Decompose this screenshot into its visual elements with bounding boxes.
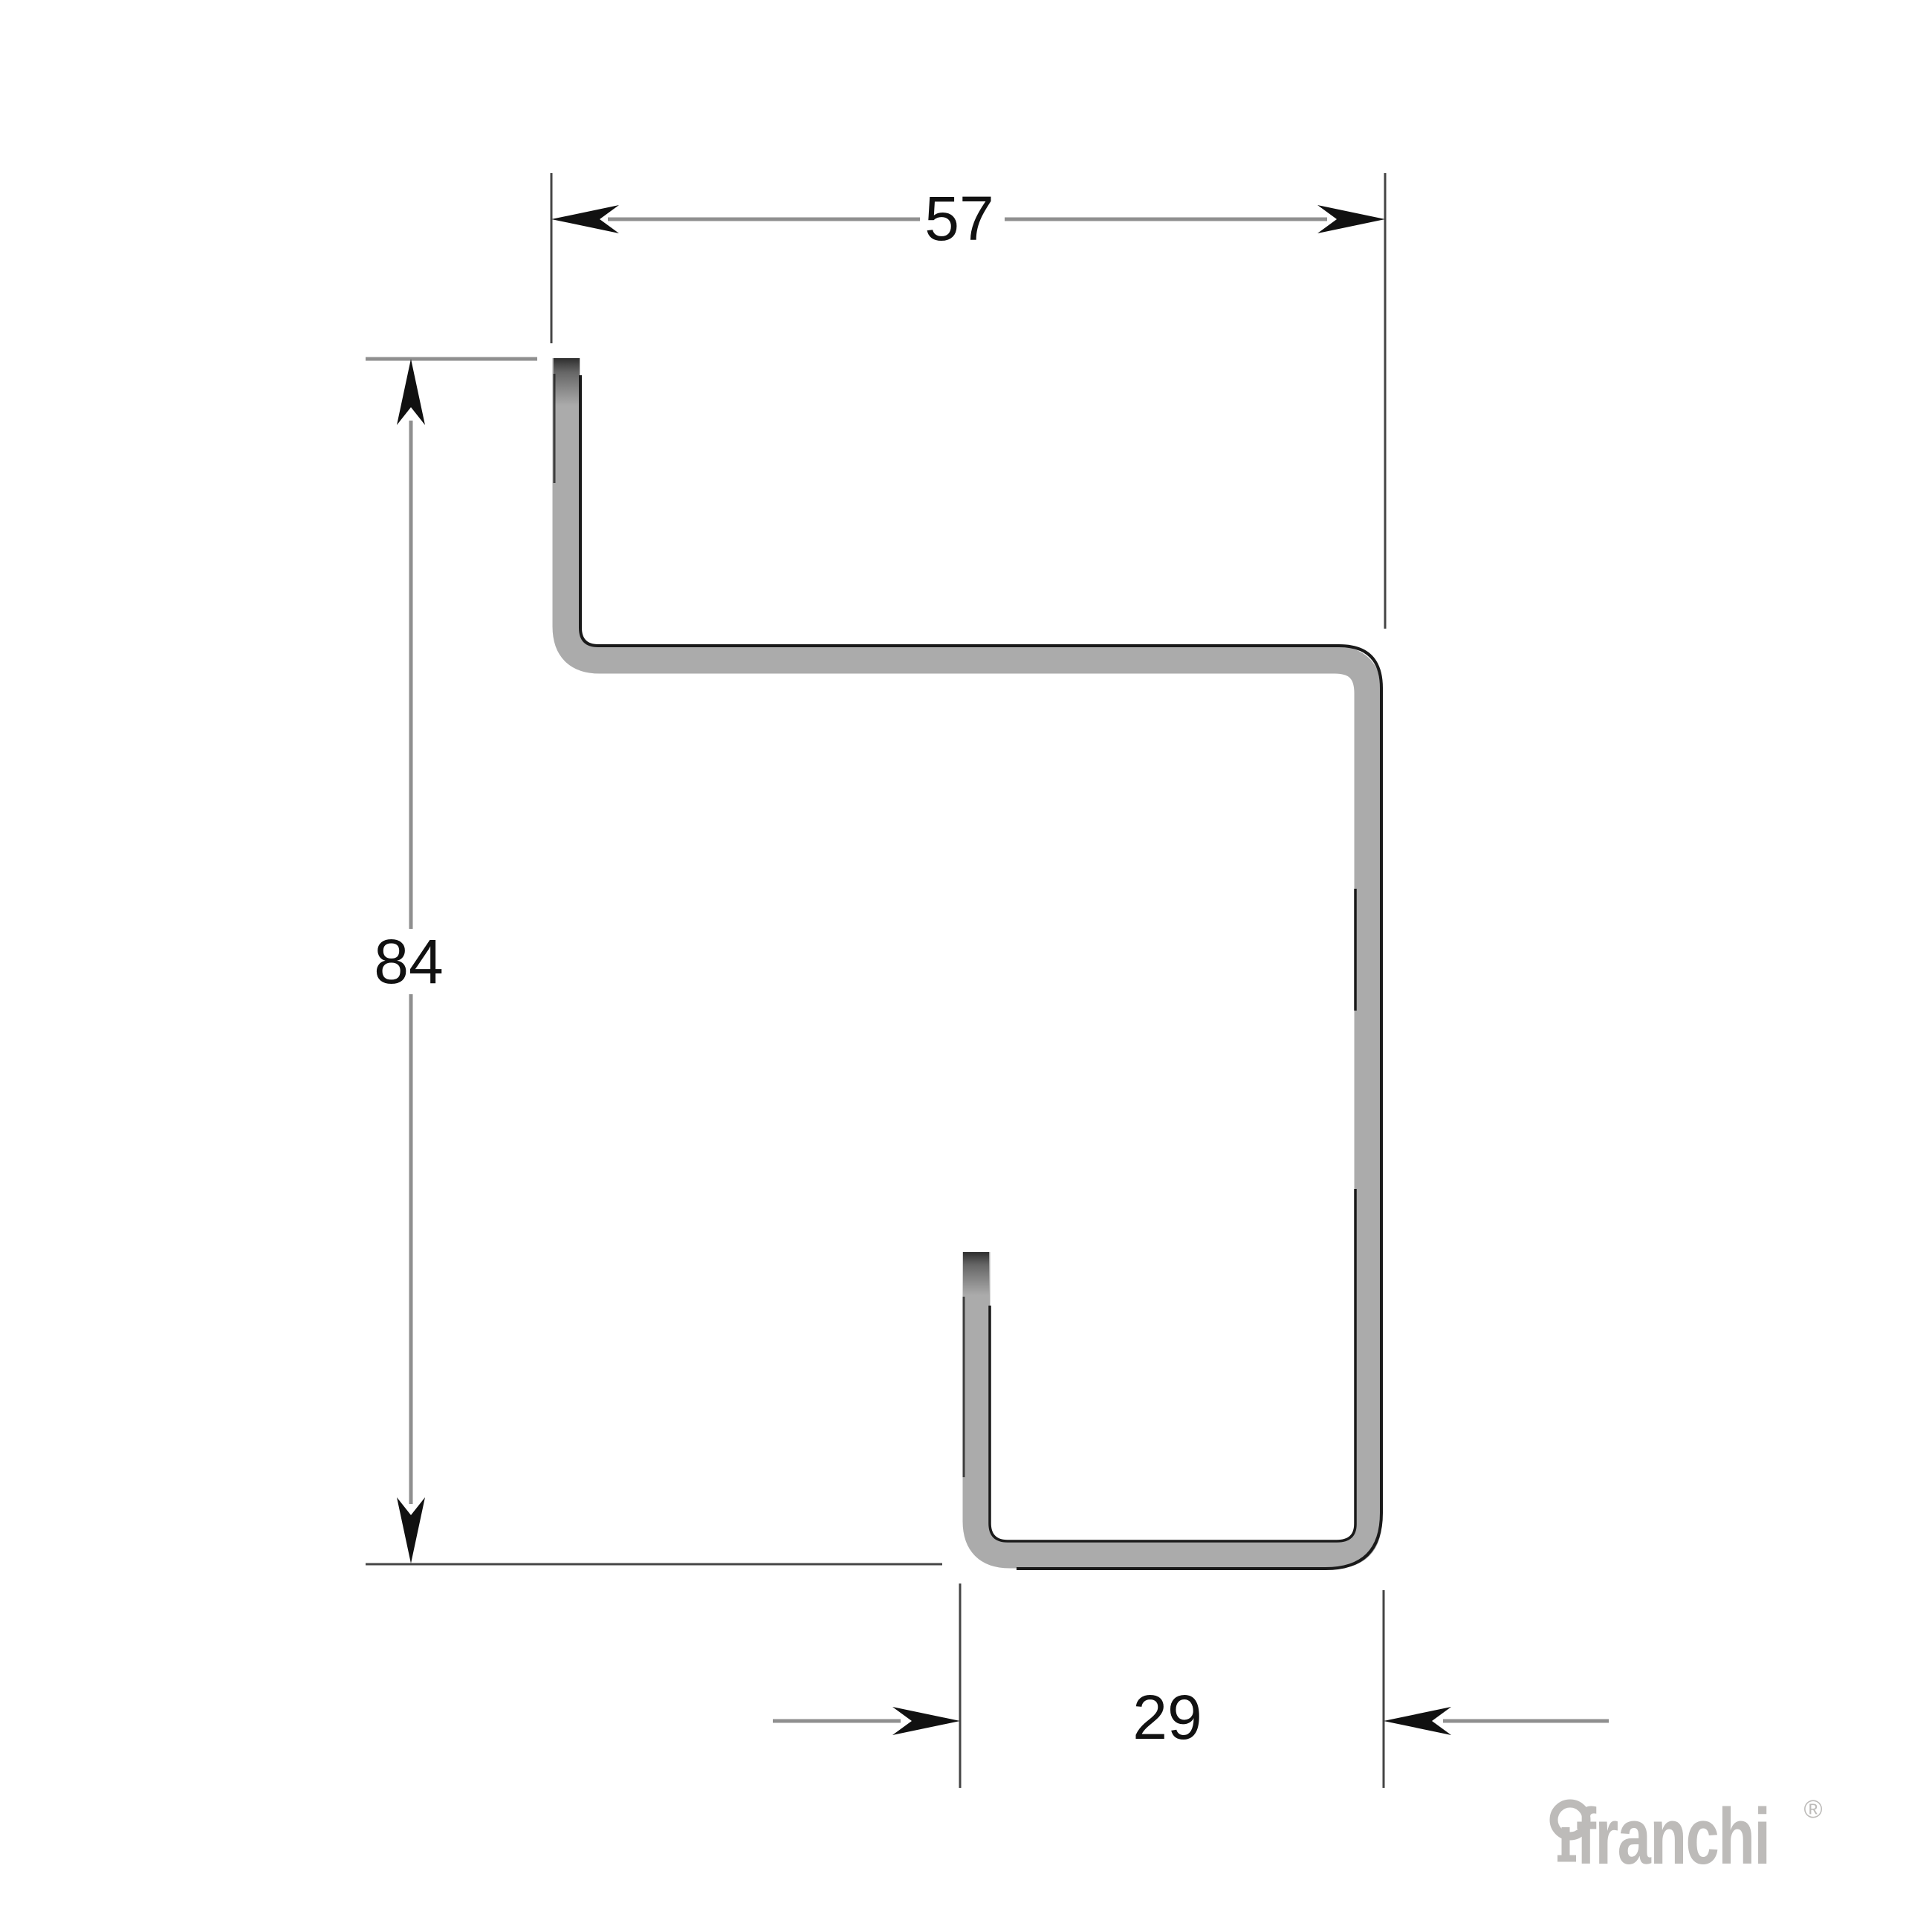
profile-end-cap-top (554, 358, 580, 406)
profile-outline-accent (990, 1189, 1355, 1541)
dimension-57: 57 (551, 173, 1385, 629)
arrowhead-right-icon (1317, 205, 1385, 233)
profile-group (554, 358, 1381, 1569)
registered-mark: ® (1803, 1795, 1822, 1824)
dim-29-label: 29 (1132, 1682, 1202, 1752)
arrowhead-right-icon (892, 1707, 960, 1735)
logo-text: franchi (1576, 1792, 1769, 1881)
dimension-84: 84 (366, 359, 942, 1564)
dim-57-label: 57 (924, 184, 993, 253)
arrowhead-down-icon (397, 1497, 425, 1563)
arrowhead-left-icon (1384, 1707, 1451, 1735)
drawing-sheet: 57 84 29 franchi ® (0, 0, 1932, 1932)
logo: franchi ® (1554, 1792, 1823, 1881)
dim-84-label: 84 (374, 927, 443, 996)
dimension-29: 29 (773, 1583, 1609, 1788)
arrowhead-up-icon (397, 359, 425, 425)
profile-body (566, 358, 1368, 1555)
technical-drawing-canvas: 57 84 29 franchi ® (0, 0, 1932, 1932)
profile-end-cap-bottom (963, 1252, 989, 1295)
